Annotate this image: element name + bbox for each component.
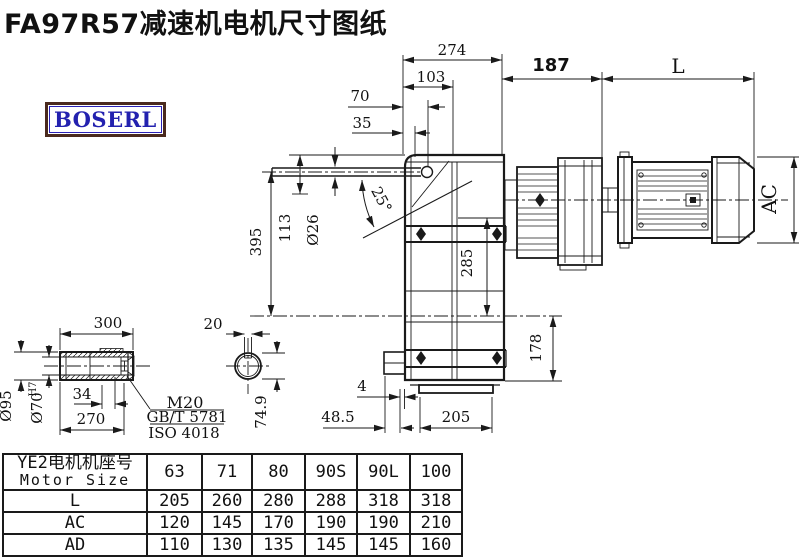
column-header: 90L: [357, 454, 410, 490]
motor-size-table: YE2电机机座号 Motor Size 63 71 80 90S 90L 100…: [2, 453, 463, 557]
table-row-AC: AC 120 145 170 190 190 210: [3, 512, 462, 534]
cell: 260: [202, 490, 252, 512]
cell: 210: [410, 512, 462, 534]
cell: 145: [357, 534, 410, 556]
dim-dia26: Ø26: [304, 214, 322, 245]
dim-4: 4: [357, 377, 367, 395]
dim-35: 35: [352, 114, 371, 132]
row-label: AD: [3, 534, 147, 556]
table-header-cn: YE2电机机座号: [4, 455, 146, 472]
dim-34: 34: [72, 385, 91, 403]
cell: 318: [410, 490, 462, 512]
cell: 288: [305, 490, 357, 512]
cell: 145: [305, 534, 357, 556]
input-shaft-hole: [422, 167, 433, 178]
drawing-sheet: FA97R57减速机电机尺寸图纸 BOSERL: [0, 0, 800, 555]
dim-dia95: Ø95: [0, 390, 15, 421]
dim-25deg: 25°: [367, 184, 395, 216]
dim-103: 103: [417, 68, 446, 86]
row-label: AC: [3, 512, 147, 534]
breather-plug: [535, 193, 545, 207]
dim-270: 270: [77, 410, 106, 428]
cell: 160: [410, 534, 462, 556]
dim-74-9: 74.9: [252, 395, 270, 428]
dim-178: 178: [527, 334, 545, 363]
r57-gear-unit: [505, 158, 618, 270]
column-header: 71: [202, 454, 252, 490]
column-header: 63: [147, 454, 202, 490]
bolt-diamond-markers: [416, 193, 545, 365]
cell: 318: [357, 490, 410, 512]
cell: 190: [305, 512, 357, 534]
dimension-labels: 274 103 70 35 187 L 25° 113 Ø26 395 285 …: [0, 41, 781, 442]
label-iso-4018: ISO 4018: [148, 424, 219, 442]
dim-285: 285: [458, 249, 476, 278]
leader-line: [127, 376, 150, 409]
column-header: 80: [252, 454, 305, 490]
row-label: L: [3, 490, 147, 512]
cell: 110: [147, 534, 202, 556]
cell: 130: [202, 534, 252, 556]
column-header: 100: [410, 454, 462, 490]
dimension-lines: [21, 60, 794, 430]
dim-AC: AC: [757, 184, 781, 215]
table-header-en: Motor Size: [4, 472, 146, 489]
dim-20: 20: [203, 315, 222, 333]
cell: 120: [147, 512, 202, 534]
table-row-L: L 205 260 280 288 318 318: [3, 490, 462, 512]
cell: 170: [252, 512, 305, 534]
table-header-motor-size: YE2电机机座号 Motor Size: [3, 454, 147, 490]
cell: 190: [357, 512, 410, 534]
input-shaft: [272, 167, 472, 239]
dim-L: L: [671, 54, 684, 78]
cell: 135: [252, 534, 305, 556]
dim-205: 205: [442, 408, 471, 426]
dim-70: 70: [350, 87, 369, 105]
gearbox-housing: [384, 155, 506, 393]
dim-187: 187: [532, 55, 570, 76]
dim-h7-tolerance: H7: [28, 381, 39, 396]
dim-300: 300: [94, 314, 123, 332]
center-lines: [44, 172, 788, 394]
cell: 205: [147, 490, 202, 512]
table-header-row: YE2电机机座号 Motor Size 63 71 80 90S 90L 100: [3, 454, 462, 490]
cell: 145: [202, 512, 252, 534]
column-header: 90S: [305, 454, 357, 490]
dim-113: 113: [276, 214, 294, 243]
table-row-AD: AD 110 130 135 145 145 160: [3, 534, 462, 556]
dim-274: 274: [438, 41, 467, 59]
angle-arc: [362, 180, 374, 227]
cell: 280: [252, 490, 305, 512]
dim-395: 395: [247, 228, 265, 257]
dim-48-5: 48.5: [321, 408, 354, 426]
